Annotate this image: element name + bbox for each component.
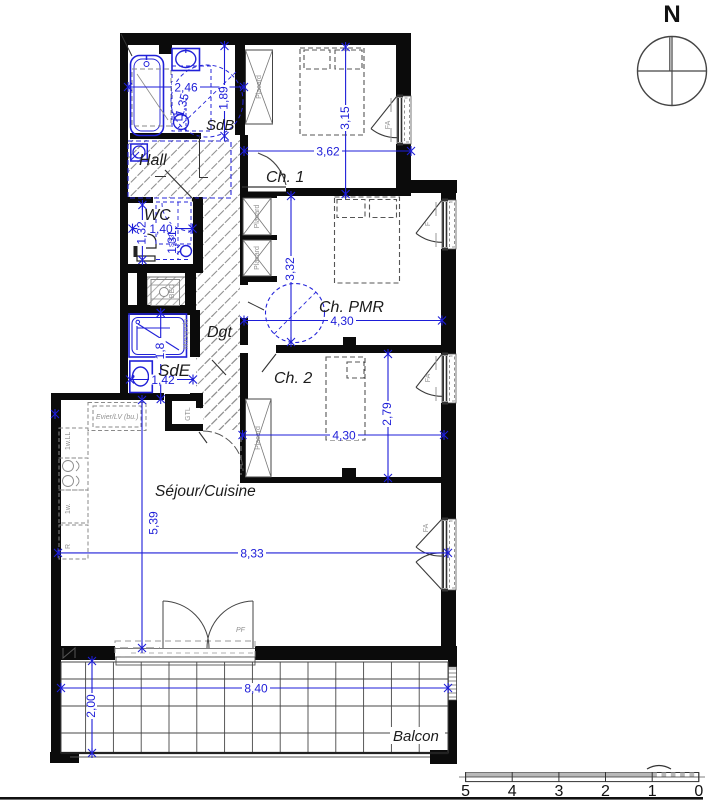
svg-text:Dgt: Dgt [207,324,232,341]
svg-text:GTL: GTL [185,407,192,421]
svg-text:F: F [425,222,432,226]
svg-text:1w.: 1w. [65,503,72,514]
svg-text:Evier/LV (bu.): Evier/LV (bu.) [96,414,138,421]
svg-text:2,00: 2,00 [84,694,98,718]
svg-text:1w.LL: 1w.LL [65,432,72,450]
svg-text:4,30: 4,30 [332,429,356,443]
svg-text:FA: FA [385,120,392,129]
svg-text:FA: FA [423,523,430,532]
svg-text:3,15: 3,15 [338,106,352,130]
svg-text:Placard: Placard [254,205,261,229]
svg-text:2,79: 2,79 [380,402,394,426]
svg-text:Masquelo: Masquelo [183,319,190,349]
svg-text:1,89: 1,89 [217,86,231,110]
svg-text:Hall: Hall [139,152,167,169]
svg-text:Ch. 1: Ch. 1 [266,169,304,186]
svg-text:Placard: Placard [256,75,263,99]
svg-text:8,33: 8,33 [240,546,264,560]
svg-text:Balcon: Balcon [393,728,439,745]
svg-text:Ch. 2: Ch. 2 [274,370,312,387]
svg-text:Placard: Placard [254,246,261,270]
svg-text:5,39: 5,39 [147,511,161,535]
svg-text:St13: St13 [170,234,176,247]
svg-text:Placard: Placard [255,426,262,450]
svg-text:SdE: SdE [158,361,191,380]
svg-text:BEC: BEC [169,284,176,298]
svg-text:WC: WC [144,207,171,224]
svg-text:FA: FA [425,373,432,382]
svg-text:R: R [65,544,72,549]
svg-text:N: N [663,1,680,28]
svg-text:Ch. PMR: Ch. PMR [319,299,384,316]
svg-text:8,40: 8,40 [244,682,268,696]
svg-text:PF: PF [236,627,246,634]
svg-text:3,32: 3,32 [283,257,297,281]
svg-text:3,62: 3,62 [316,145,340,159]
svg-text:Séjour/Cuisine: Séjour/Cuisine [155,483,256,500]
svg-text:1,8: 1,8 [153,342,167,359]
svg-text:1,32: 1,32 [135,221,149,245]
svg-text:4,30: 4,30 [330,314,354,328]
svg-text:SdB: SdB [206,117,234,134]
